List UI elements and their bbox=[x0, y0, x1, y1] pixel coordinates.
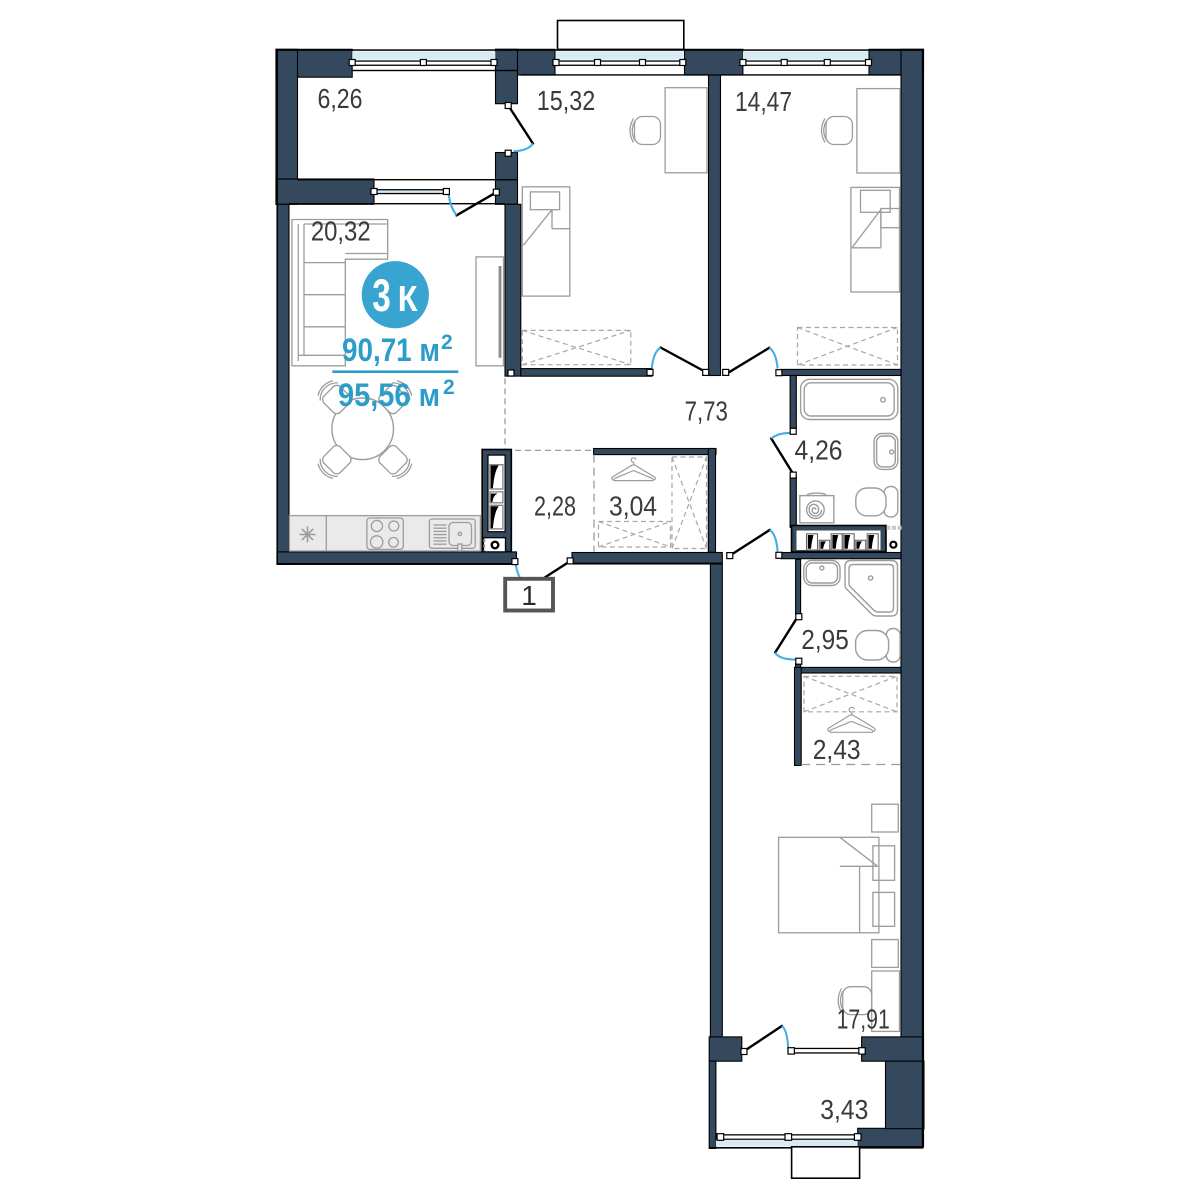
svg-text:2,95: 2,95 bbox=[801, 624, 849, 655]
svg-text:4,26: 4,26 bbox=[795, 435, 843, 466]
svg-text:2: 2 bbox=[441, 331, 453, 354]
svg-text:К: К bbox=[398, 278, 419, 319]
svg-text:15,32: 15,32 bbox=[537, 85, 595, 116]
svg-text:3,04: 3,04 bbox=[609, 491, 657, 522]
svg-text:6,26: 6,26 bbox=[318, 83, 363, 114]
svg-text:3: 3 bbox=[372, 270, 391, 321]
svg-text:95,56 м: 95,56 м bbox=[338, 377, 440, 413]
svg-text:1: 1 bbox=[521, 580, 537, 611]
svg-text:3,43: 3,43 bbox=[820, 1094, 868, 1125]
svg-text:14,47: 14,47 bbox=[735, 86, 792, 117]
svg-text:2,28: 2,28 bbox=[534, 491, 576, 522]
svg-text:17,91: 17,91 bbox=[837, 1004, 890, 1035]
svg-text:2,43: 2,43 bbox=[813, 734, 861, 765]
svg-text:2: 2 bbox=[443, 376, 455, 399]
svg-text:7,73: 7,73 bbox=[685, 396, 728, 427]
svg-text:20,32: 20,32 bbox=[311, 216, 371, 247]
svg-text:90,71 м: 90,71 м bbox=[342, 332, 440, 368]
